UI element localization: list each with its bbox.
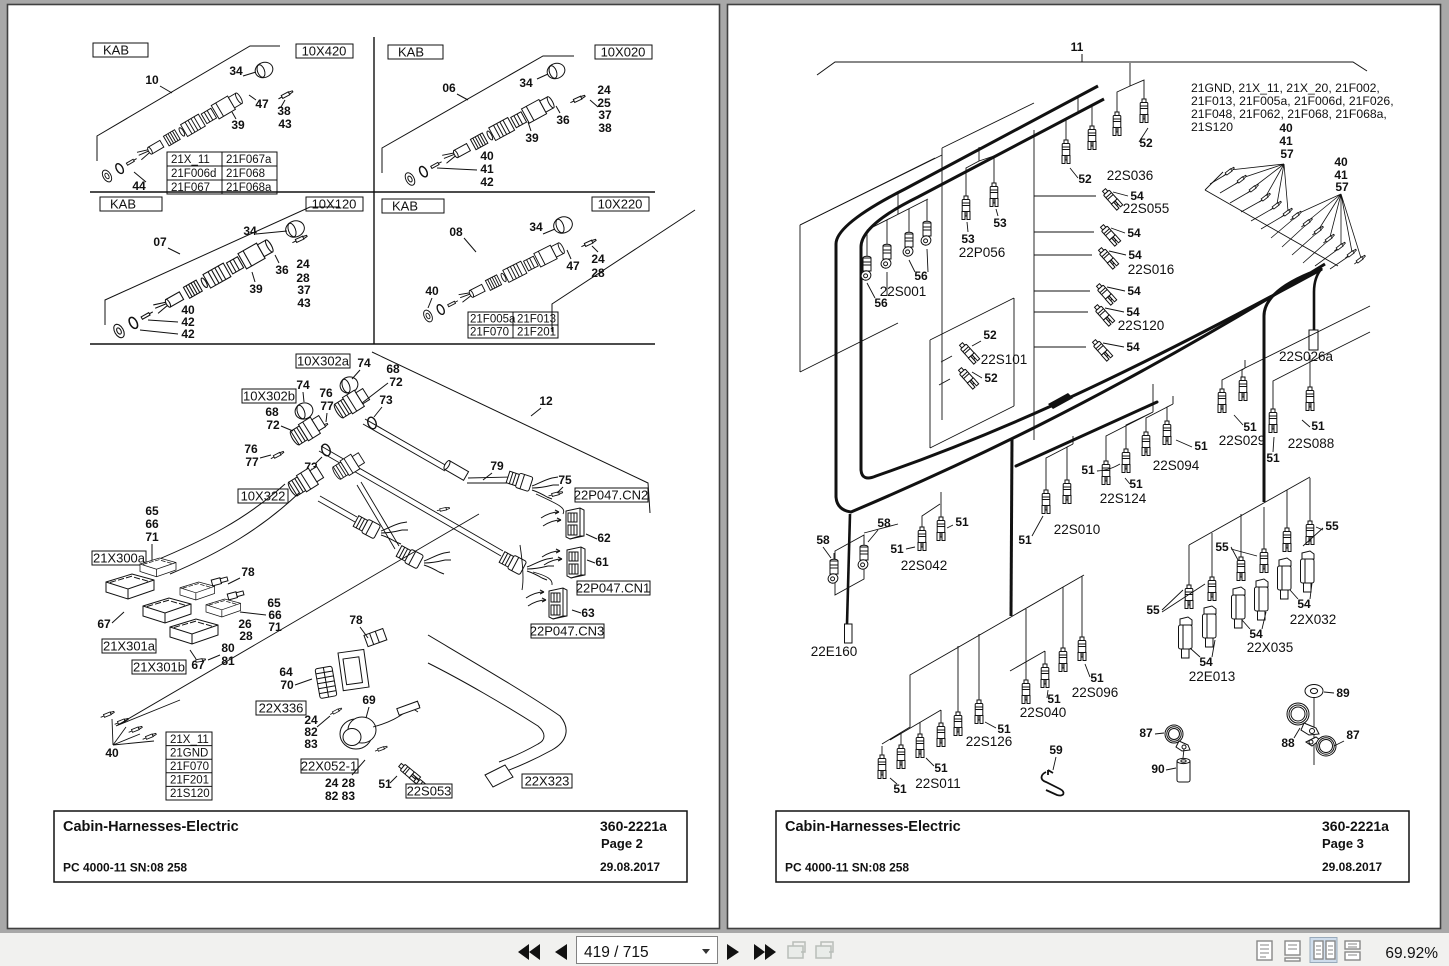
svg-text:54: 54 (1249, 627, 1263, 641)
svg-text:54: 54 (1297, 597, 1311, 611)
svg-text:52: 52 (984, 371, 998, 385)
svg-text:53: 53 (961, 232, 975, 246)
svg-text:22S010: 22S010 (1054, 522, 1101, 537)
svg-text:47: 47 (566, 259, 580, 273)
svg-text:22S011: 22S011 (915, 776, 961, 791)
svg-text:52: 52 (983, 328, 997, 342)
svg-text:58: 58 (877, 516, 891, 530)
svg-text:57: 57 (1280, 147, 1294, 161)
svg-text:22S026a: 22S026a (1279, 349, 1334, 364)
svg-text:71: 71 (268, 620, 282, 634)
svg-text:43: 43 (297, 296, 311, 310)
svg-text:22S101: 22S101 (981, 352, 1028, 367)
svg-text:21X_11: 21X_11 (170, 734, 209, 746)
svg-text:21X300a: 21X300a (93, 551, 146, 566)
svg-text:22S120: 22S120 (1118, 318, 1165, 333)
svg-text:22S124: 22S124 (1100, 491, 1147, 506)
svg-text:55: 55 (1325, 519, 1339, 533)
svg-text:22P047.CN3: 22P047.CN3 (530, 624, 604, 639)
svg-text:21X301a: 21X301a (103, 639, 156, 654)
svg-text:360-2221a: 360-2221a (600, 818, 667, 834)
svg-text:24: 24 (591, 252, 605, 266)
svg-text:Cabin-Harnesses-Electric: Cabin-Harnesses-Electric (63, 819, 239, 835)
svg-text:10X322: 10X322 (241, 489, 286, 504)
svg-text:21F068: 21F068 (226, 168, 265, 180)
svg-text:360-2221a: 360-2221a (1322, 818, 1389, 834)
svg-text:21F067: 21F067 (171, 182, 210, 194)
svg-text:Cabin-Harnesses-Electric: Cabin-Harnesses-Electric (785, 819, 961, 835)
svg-text:74: 74 (296, 378, 310, 392)
svg-text:57: 57 (1335, 180, 1349, 194)
svg-text:22P047.CN1: 22P047.CN1 (576, 581, 650, 596)
svg-text:87: 87 (1346, 728, 1360, 742)
svg-text:39: 39 (525, 131, 539, 145)
svg-text:29.08.2017: 29.08.2017 (1322, 860, 1382, 874)
svg-text:22S016: 22S016 (1128, 262, 1175, 277)
svg-text:419 / 715: 419 / 715 (584, 944, 649, 961)
svg-text:47: 47 (255, 97, 269, 111)
svg-text:54: 54 (1126, 340, 1140, 354)
svg-text:22S042: 22S042 (901, 558, 948, 573)
svg-text:67: 67 (97, 617, 111, 631)
svg-text:72: 72 (389, 375, 403, 389)
svg-text:58: 58 (816, 533, 830, 547)
svg-text:74: 74 (357, 356, 371, 370)
svg-text:37: 37 (297, 283, 311, 297)
svg-text:22P047.CN2: 22P047.CN2 (574, 488, 648, 503)
svg-text:36: 36 (556, 113, 570, 127)
svg-text:51: 51 (1311, 419, 1325, 433)
svg-text:51: 51 (934, 761, 948, 775)
svg-text:22P056: 22P056 (959, 245, 1006, 260)
svg-text:37: 37 (598, 108, 612, 122)
svg-text:73: 73 (379, 393, 393, 407)
svg-text:22S053: 22S053 (407, 784, 452, 799)
svg-text:40: 40 (480, 149, 494, 163)
svg-text:22S040: 22S040 (1020, 705, 1067, 720)
svg-text:66: 66 (145, 517, 159, 531)
svg-text:59: 59 (1049, 743, 1063, 757)
svg-text:22S094: 22S094 (1153, 458, 1200, 473)
svg-text:69: 69 (362, 693, 376, 707)
svg-text:55: 55 (1215, 540, 1229, 554)
svg-text:06: 06 (442, 81, 456, 95)
svg-text:78: 78 (349, 613, 363, 627)
svg-text:Page 3: Page 3 (1322, 836, 1364, 851)
svg-text:38: 38 (277, 104, 291, 118)
svg-text:40: 40 (1334, 155, 1348, 169)
svg-text:39: 39 (231, 118, 245, 132)
svg-text:10X302b: 10X302b (243, 389, 295, 404)
svg-text:22S096: 22S096 (1072, 685, 1119, 700)
svg-text:54: 54 (1199, 655, 1213, 669)
svg-text:24: 24 (597, 83, 611, 97)
svg-text:34: 34 (243, 224, 257, 238)
svg-text:KAB: KAB (110, 197, 136, 212)
svg-text:21GND: 21GND (170, 748, 208, 760)
svg-text:22E013: 22E013 (1189, 669, 1236, 684)
svg-text:21F067a: 21F067a (226, 154, 272, 166)
svg-text:Page 2: Page 2 (601, 836, 643, 851)
svg-text:36: 36 (275, 263, 289, 277)
svg-text:21F048, 21F062, 21F068, 21F068: 21F048, 21F062, 21F068, 21F068a, (1191, 107, 1387, 121)
svg-text:21F070: 21F070 (170, 761, 209, 773)
svg-text:34: 34 (519, 76, 533, 90)
svg-text:61: 61 (595, 555, 609, 569)
svg-text:41: 41 (480, 162, 494, 176)
svg-text:51: 51 (893, 782, 907, 796)
svg-text:10X120: 10X120 (312, 197, 357, 212)
svg-text:76: 76 (244, 442, 258, 456)
svg-text:51: 51 (1018, 533, 1032, 547)
svg-text:51: 51 (1129, 477, 1143, 491)
svg-text:42: 42 (480, 175, 494, 189)
svg-text:10X302a: 10X302a (297, 354, 350, 369)
svg-text:71: 71 (145, 530, 159, 544)
svg-text:21X_11: 21X_11 (171, 154, 210, 166)
svg-text:22S029: 22S029 (1219, 433, 1266, 448)
svg-text:21S120: 21S120 (170, 788, 210, 800)
svg-text:51: 51 (1047, 692, 1061, 706)
svg-text:40: 40 (425, 284, 439, 298)
svg-text:22X052-1: 22X052-1 (301, 759, 357, 774)
svg-text:21GND, 21X_11, 21X_20, 21F002,: 21GND, 21X_11, 21X_20, 21F002, (1191, 81, 1380, 95)
svg-text:87: 87 (1139, 726, 1153, 740)
svg-text:41: 41 (1279, 134, 1293, 148)
svg-text:68: 68 (265, 405, 279, 419)
svg-text:21S120: 21S120 (1191, 120, 1233, 134)
svg-text:40: 40 (1279, 121, 1293, 135)
svg-text:10X420: 10X420 (302, 44, 347, 59)
svg-text:22S088: 22S088 (1288, 436, 1335, 451)
svg-text:62: 62 (597, 531, 611, 545)
svg-text:69.92%: 69.92% (1385, 945, 1438, 962)
svg-text:88: 88 (1281, 736, 1295, 750)
svg-text:54: 54 (1126, 305, 1140, 319)
svg-text:22S055: 22S055 (1123, 201, 1170, 216)
svg-text:21F006d: 21F006d (171, 168, 216, 180)
svg-text:21F013, 21F005a, 21F006d, 21F0: 21F013, 21F005a, 21F006d, 21F026, (1191, 94, 1394, 108)
svg-text:07: 07 (153, 235, 167, 249)
svg-text:21F068a: 21F068a (226, 182, 272, 194)
svg-text:51: 51 (1194, 439, 1208, 453)
svg-text:51: 51 (890, 542, 904, 556)
svg-text:54: 54 (1127, 226, 1141, 240)
svg-text:51: 51 (1266, 451, 1280, 465)
svg-text:KAB: KAB (398, 45, 424, 60)
svg-text:77: 77 (320, 399, 334, 413)
svg-text:51: 51 (1081, 463, 1095, 477)
svg-text:12: 12 (539, 394, 553, 408)
svg-text:90: 90 (1151, 762, 1165, 776)
svg-text:82 83: 82 83 (325, 789, 355, 803)
svg-text:51: 51 (1243, 420, 1257, 434)
svg-text:38: 38 (598, 121, 612, 135)
svg-text:22E160: 22E160 (811, 644, 858, 659)
svg-text:54: 54 (1128, 248, 1142, 262)
svg-text:39: 39 (249, 282, 263, 296)
svg-text:70: 70 (280, 678, 294, 692)
svg-text:10X220: 10X220 (598, 197, 643, 212)
svg-text:64: 64 (279, 665, 293, 679)
svg-text:10X020: 10X020 (601, 45, 646, 60)
svg-text:54: 54 (1127, 284, 1141, 298)
svg-text:22X336: 22X336 (259, 701, 304, 716)
svg-text:11: 11 (1071, 40, 1084, 54)
svg-text:24 28: 24 28 (325, 776, 355, 790)
svg-text:76: 76 (319, 386, 333, 400)
svg-text:KAB: KAB (392, 199, 418, 214)
svg-text:22S036: 22S036 (1107, 168, 1154, 183)
svg-text:21F201: 21F201 (170, 775, 209, 787)
svg-text:77: 77 (245, 455, 259, 469)
svg-text:PC 4000-11 SN:08 258: PC 4000-11 SN:08 258 (63, 861, 187, 875)
svg-text:22X035: 22X035 (1247, 640, 1294, 655)
svg-text:72: 72 (266, 418, 280, 432)
svg-text:75: 75 (558, 473, 572, 487)
svg-text:08: 08 (449, 225, 463, 239)
svg-text:24: 24 (296, 257, 310, 271)
svg-text:56: 56 (914, 269, 928, 283)
svg-text:78: 78 (241, 565, 255, 579)
svg-text:29.08.2017: 29.08.2017 (600, 860, 660, 874)
svg-text:KAB: KAB (103, 43, 129, 58)
svg-text:40: 40 (105, 746, 119, 760)
svg-text:34: 34 (229, 64, 243, 78)
svg-text:65: 65 (145, 504, 159, 518)
svg-text:28: 28 (239, 629, 253, 643)
svg-text:21X301b: 21X301b (133, 660, 185, 675)
svg-text:51: 51 (955, 515, 969, 529)
svg-text:42: 42 (181, 327, 195, 341)
svg-text:22X032: 22X032 (1290, 612, 1337, 627)
svg-text:PC 4000-11 SN:08 258: PC 4000-11 SN:08 258 (785, 861, 909, 875)
svg-text:28: 28 (591, 266, 605, 280)
svg-text:68: 68 (386, 362, 400, 376)
svg-text:63: 63 (581, 606, 595, 620)
svg-text:21F201: 21F201 (517, 327, 556, 339)
svg-text:51: 51 (1090, 671, 1104, 685)
svg-text:21F005a: 21F005a (470, 314, 516, 326)
svg-text:43: 43 (278, 117, 292, 131)
svg-text:34: 34 (529, 220, 543, 234)
svg-text:79: 79 (490, 459, 504, 473)
svg-text:44: 44 (132, 179, 146, 193)
svg-text:89: 89 (1336, 686, 1350, 700)
svg-text:51: 51 (378, 777, 392, 791)
svg-text:53: 53 (993, 216, 1007, 230)
svg-text:80: 80 (221, 641, 235, 655)
svg-text:55: 55 (1146, 603, 1160, 617)
svg-text:21F070: 21F070 (470, 327, 509, 339)
svg-text:52: 52 (1078, 172, 1092, 186)
svg-text:21F013: 21F013 (517, 314, 556, 326)
svg-text:83: 83 (304, 737, 318, 751)
svg-text:22S126: 22S126 (966, 734, 1013, 749)
svg-text:10: 10 (145, 73, 159, 87)
svg-text:22X323: 22X323 (525, 774, 570, 789)
